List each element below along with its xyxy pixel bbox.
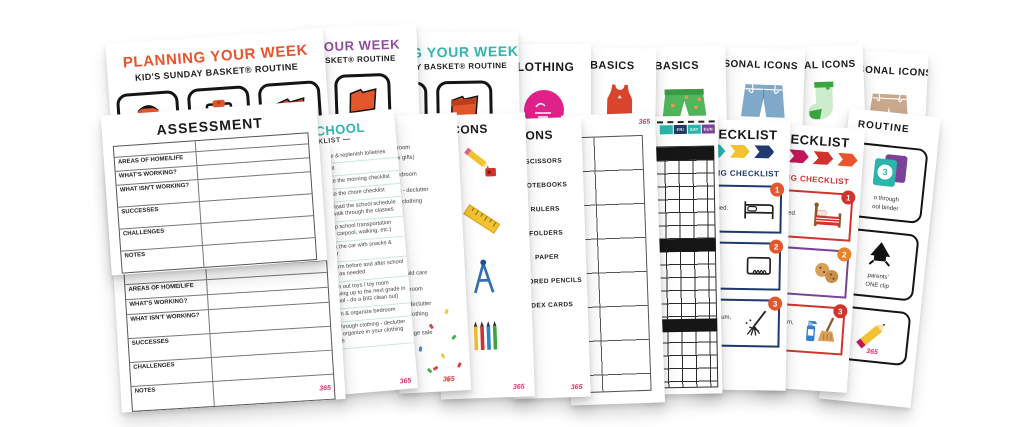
assessment-table: AREAS OF HOME/LIFE WHAT'S WORKING? WHAT … [123,260,335,412]
routine-caption-line: ool binder [872,204,899,213]
brand-logo: 365 [513,384,525,391]
school-binder-icon: 3 [866,150,912,190]
fragment-line: r child care [399,266,465,280]
chevron-icon [730,145,750,158]
day-tab [660,125,673,134]
chevron-icon [813,151,834,165]
grid-section-bar [651,238,716,252]
brand-logo: 365 [319,385,331,393]
ruler-icon [461,200,502,237]
row-label: NOTES [121,246,204,273]
printables-mockup-collage: SEASONAL ICONS SEASONAL ICONS Socks SEAS… [0,0,1024,427]
step-number-badge: 2 [837,247,852,262]
page-assessment-1: ASSESSMENT AREAS OF HOME/LIFE WHAT'S WOR… [101,101,328,276]
compass-icon [466,257,501,296]
day-tab: SAT [688,125,701,134]
brand-logo: 365 [638,119,650,126]
step-number-badge: 2 [769,239,783,253]
day-header-row: FRI SAT SUN [660,124,715,134]
step-number-badge: 3 [833,304,848,319]
assessment-table: AREAS OF HOME/LIFE WHAT'S WORKING? WHAT … [113,132,317,273]
clip-icon [864,237,897,268]
page-title: SEASONAL ICONS [719,58,805,73]
brand-logo: 365 [571,384,583,391]
routine-caption-line: ONE clip [865,282,889,290]
fragment-line: bedroom [394,167,460,181]
brand-logo: 365 [866,348,878,356]
step-number-badge: 3 [768,296,782,310]
colored-pencils-icon [468,316,503,353]
day-tab: SUN [702,124,715,133]
sock-icon [802,78,842,125]
bed-color-icon [810,199,846,233]
fragment-line: ew gifts) [393,151,459,165]
cut-line [647,120,715,123]
brand-logo: 365 [399,378,411,386]
bed-line-icon [742,194,775,225]
wiping-hand-icon [743,251,774,282]
day-tab: FRI [674,125,687,134]
broom-line-icon [742,307,773,340]
step-number-badge: 1 [841,190,856,205]
chevron-icon [754,145,774,158]
routine-caption-line: o through [873,195,899,204]
routine-caption-line: parents' [867,273,889,281]
chevron-icon [837,153,858,167]
brand-logo: 365 [443,376,455,384]
denim-shorts-icon [740,80,787,124]
grid-section-bar [649,146,714,160]
pencil-and-sharpener-icon [460,145,499,180]
spray-broom-icon [803,313,838,347]
page-title: BASICS [581,59,656,73]
chevron-icon [788,149,809,163]
svg-text:3: 3 [882,167,888,177]
row-label: NOTES [131,382,214,411]
snack-icon [810,258,842,288]
step-number-badge: 1 [770,182,784,196]
